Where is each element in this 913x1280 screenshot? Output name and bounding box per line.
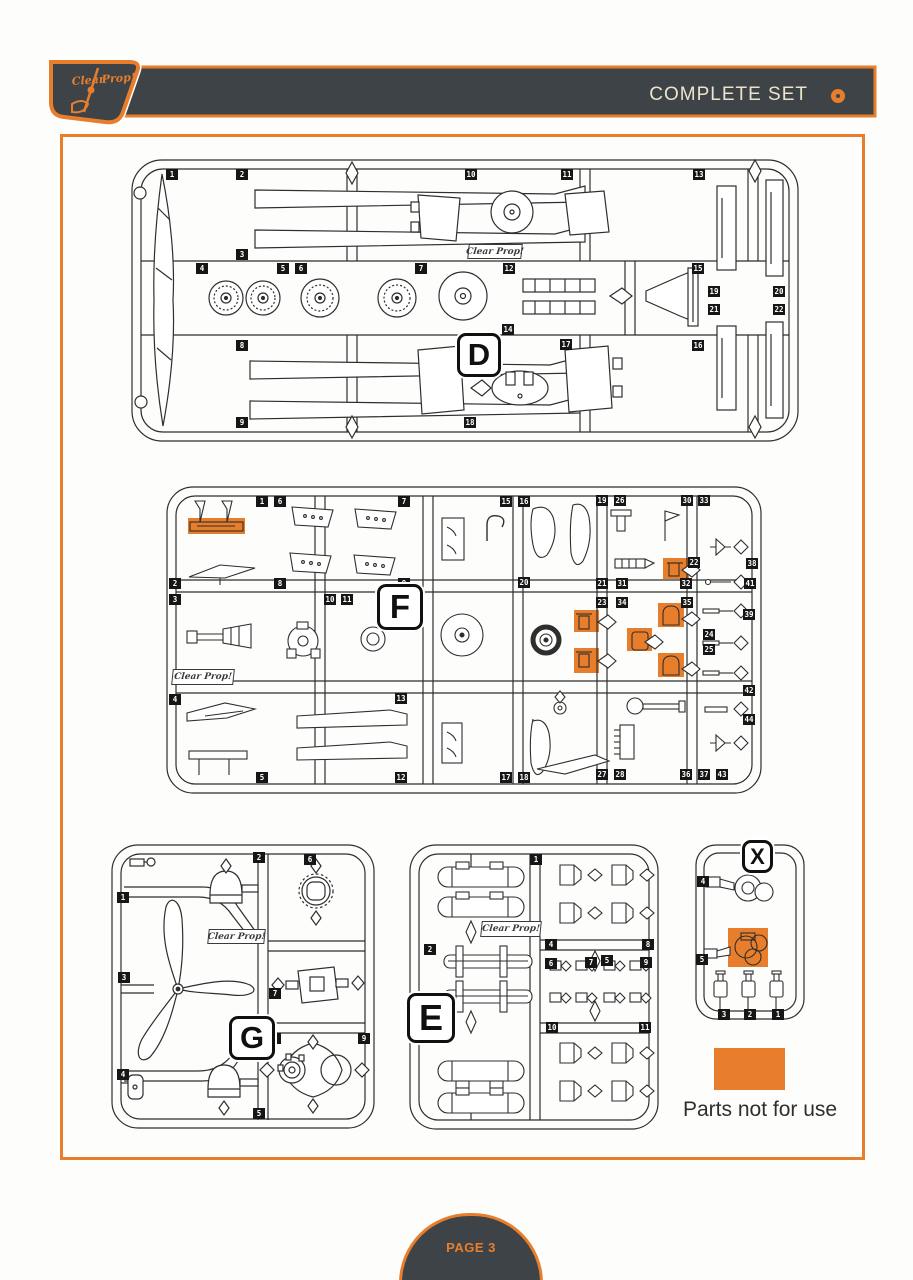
part-number-chip-G7: 7: [269, 988, 281, 999]
part-number-chip-D22: 22: [773, 304, 785, 315]
part-number-chip-E10: 10: [546, 1022, 558, 1033]
part-number-chip-D16: 16: [692, 340, 704, 351]
brand-stamp-E: Clear Prop!: [480, 921, 542, 937]
part-number-chip-F31: 31: [616, 578, 628, 589]
part-number-chip-X1: 1: [772, 1009, 784, 1020]
part-number-chip-X4: 4: [697, 876, 709, 887]
part-number-chip-E5: 5: [601, 955, 613, 966]
part-number-chip-D8: 8: [236, 340, 248, 351]
part-number-chip-G5: 5: [253, 1108, 265, 1119]
part-number-chip-F15: 15: [500, 496, 512, 507]
part-number-chip-F41: 41: [744, 578, 756, 589]
part-number-chip-G1: 1: [117, 892, 129, 903]
header-dot-icon: [831, 89, 845, 103]
part-number-chip-F20: 20: [518, 577, 530, 588]
part-number-chip-F25: 25: [703, 644, 715, 655]
part-number-chip-G4: 4: [117, 1069, 129, 1080]
part-number-chip-F44: 44: [743, 714, 755, 725]
part-number-chip-F6: 6: [274, 496, 286, 507]
part-number-chip-G3: 3: [118, 972, 130, 983]
part-number-chip-F3: 3: [169, 594, 181, 605]
part-number-chip-D18: 18: [464, 417, 476, 428]
part-number-chip-F37: 37: [698, 769, 710, 780]
part-number-chip-X5: 5: [696, 954, 708, 965]
part-number-chip-G9: 9: [358, 1033, 370, 1044]
part-number-chip-D20: 20: [773, 286, 785, 297]
part-number-chip-D11: 11: [561, 169, 573, 180]
sprue-letter-badge-D: D: [457, 333, 501, 377]
part-number-chip-F7: 7: [398, 496, 410, 507]
part-number-chip-F4: 4: [169, 694, 181, 705]
brand-logo: Clear Prop!: [42, 56, 146, 128]
part-number-chip-D5: 5: [277, 263, 289, 274]
part-number-chip-E9: 9: [640, 957, 652, 968]
part-number-chip-F2: 2: [169, 578, 181, 589]
part-number-chip-F42: 42: [743, 685, 755, 696]
part-number-chip-F16: 16: [518, 496, 530, 507]
sprue-letter-badge-G: G: [229, 1016, 275, 1060]
part-number-chip-D13: 13: [693, 169, 705, 180]
part-number-chip-F12: 12: [395, 772, 407, 783]
part-number-chip-D2: 2: [236, 169, 248, 180]
part-number-chip-F5: 5: [256, 772, 268, 783]
part-number-chip-D9: 9: [236, 417, 248, 428]
part-number-chip-F24: 24: [703, 629, 715, 640]
part-number-chip-D21: 21: [708, 304, 720, 315]
part-number-chip-F34: 34: [616, 597, 628, 608]
svg-text:Prop!: Prop!: [100, 71, 136, 86]
part-number-chip-F11: 11: [341, 594, 353, 605]
part-number-chip-D10: 10: [465, 169, 477, 180]
part-number-chip-F17: 17: [500, 772, 512, 783]
annotation-layer: 12101113345671215141617891819202122DClea…: [0, 0, 913, 1280]
part-number-chip-F32: 32: [680, 578, 692, 589]
part-number-chip-D17: 17: [560, 339, 572, 350]
part-number-chip-D3: 3: [236, 249, 248, 260]
part-number-chip-F43: 43: [716, 769, 728, 780]
part-number-chip-E2: 2: [424, 944, 436, 955]
manual-page: COMPLETE SET Clear Prop!: [0, 0, 913, 1280]
part-number-chip-F13: 13: [395, 693, 407, 704]
part-number-chip-D14: 14: [502, 324, 514, 335]
part-number-chip-F1: 1: [256, 496, 268, 507]
sprue-letter-badge-F: F: [377, 584, 423, 630]
brand-stamp-F: Clear Prop!: [171, 669, 235, 685]
part-number-chip-D19: 19: [708, 286, 720, 297]
part-number-chip-F28: 28: [614, 769, 626, 780]
part-number-chip-F33: 33: [698, 495, 710, 506]
part-number-chip-E8: 8: [642, 939, 654, 950]
part-number-chip-E1: 1: [530, 854, 542, 865]
part-number-chip-F19: 19: [596, 495, 608, 506]
part-number-chip-F39: 39: [743, 609, 755, 620]
part-number-chip-F10: 10: [324, 594, 336, 605]
part-number-chip-D4: 4: [196, 263, 208, 274]
brand-stamp-G: Clear Prop!: [207, 929, 266, 944]
part-number-chip-F18: 18: [518, 772, 530, 783]
part-number-chip-D15: 15: [692, 263, 704, 274]
part-number-chip-F30: 30: [681, 495, 693, 506]
part-number-chip-E11: 11: [639, 1022, 651, 1033]
part-number-chip-G2: 2: [253, 852, 265, 863]
part-number-chip-F23: 23: [596, 597, 608, 608]
part-number-chip-X2: 2: [744, 1009, 756, 1020]
part-number-chip-F38: 38: [746, 558, 758, 569]
part-number-chip-D7: 7: [415, 263, 427, 274]
part-number-chip-D6: 6: [295, 263, 307, 274]
part-number-chip-F26: 26: [614, 495, 626, 506]
part-number-chip-D1: 1: [166, 169, 178, 180]
part-number-chip-E7: 7: [585, 957, 597, 968]
part-number-chip-F8: 8: [274, 578, 286, 589]
part-number-chip-F27: 27: [596, 769, 608, 780]
part-number-chip-F22: 22: [688, 557, 700, 568]
part-number-chip-F21: 21: [596, 578, 608, 589]
sprue-letter-badge-E: E: [407, 993, 455, 1043]
part-number-chip-F36: 36: [680, 769, 692, 780]
part-number-chip-G6: 6: [304, 854, 316, 865]
part-number-chip-X3: 3: [718, 1009, 730, 1020]
part-number-chip-D12: 12: [503, 263, 515, 274]
brand-stamp-D: Clear Prop!: [467, 244, 523, 259]
sprue-letter-badge-X: X: [742, 840, 773, 873]
part-number-chip-F35: 35: [681, 597, 693, 608]
part-number-chip-E4: 4: [545, 939, 557, 950]
part-number-chip-E6: 6: [545, 958, 557, 969]
